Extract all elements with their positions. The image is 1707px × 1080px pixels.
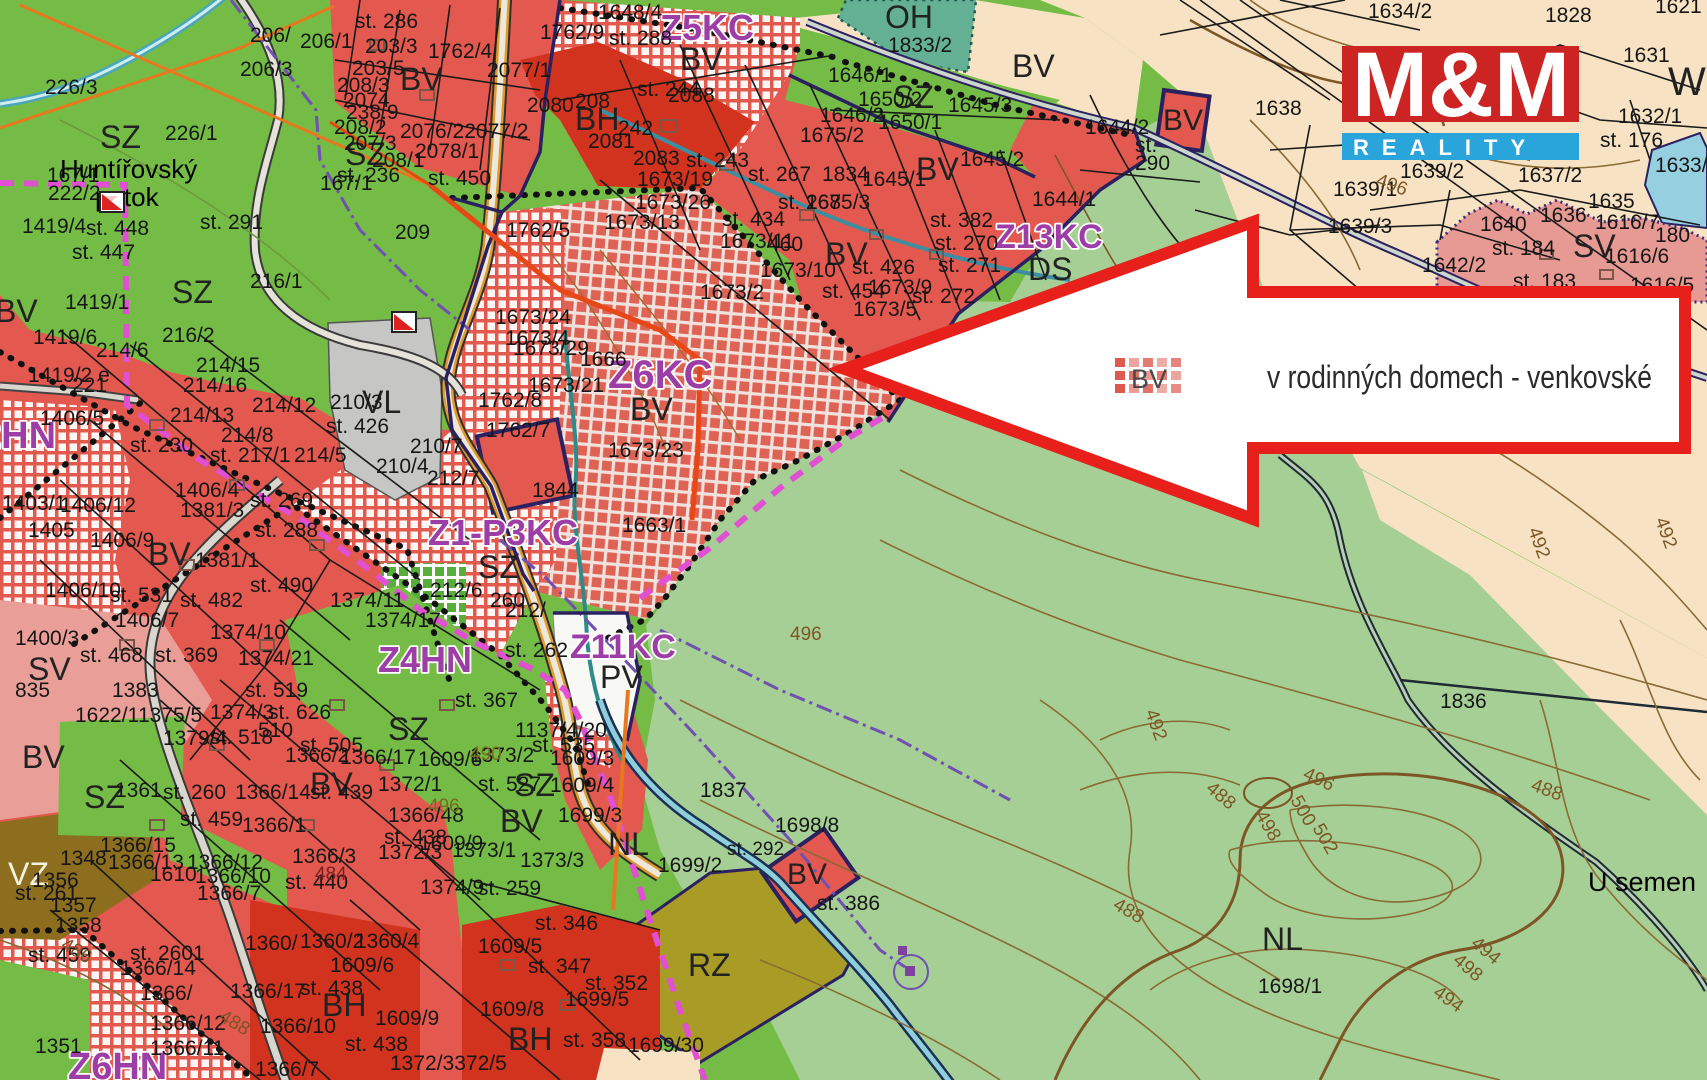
svg-text:2080: 2080 xyxy=(527,94,574,117)
svg-text:1374/21: 1374/21 xyxy=(238,647,314,670)
svg-text:1635: 1635 xyxy=(1588,190,1635,213)
svg-text:RZ: RZ xyxy=(688,947,731,983)
svg-text:st. 286: st. 286 xyxy=(355,10,418,33)
svg-text:BV: BV xyxy=(630,391,673,427)
svg-text:212/7: 212/7 xyxy=(427,467,480,490)
svg-text:1366/: 1366/ xyxy=(140,982,193,1005)
svg-text:1351: 1351 xyxy=(35,1035,82,1058)
svg-text:REALITY: REALITY xyxy=(1353,135,1538,160)
svg-text:214/16: 214/16 xyxy=(183,374,247,397)
svg-text:BV: BV xyxy=(500,803,543,839)
svg-text:st. 447: st. 447 xyxy=(72,241,135,264)
svg-text:1375/5: 1375/5 xyxy=(138,704,202,727)
svg-text:1675/2: 1675/2 xyxy=(800,124,864,147)
svg-text:1762/8: 1762/8 xyxy=(478,389,542,412)
svg-text:1610: 1610 xyxy=(150,863,197,886)
svg-text:496: 496 xyxy=(428,796,460,817)
svg-text:1358: 1358 xyxy=(55,914,102,937)
svg-text:1419/4: 1419/4 xyxy=(22,215,87,238)
svg-text:1419/1: 1419/1 xyxy=(65,291,129,314)
svg-text:st. 468: st. 468 xyxy=(80,644,143,667)
svg-text:1645/1: 1645/1 xyxy=(862,168,926,191)
svg-text:1699/30: 1699/30 xyxy=(628,1034,704,1057)
svg-text:1699/3: 1699/3 xyxy=(558,804,622,827)
svg-text:1356: 1356 xyxy=(32,869,79,892)
svg-text:Z1-P3KC: Z1-P3KC xyxy=(428,512,578,553)
svg-text:1609/6: 1609/6 xyxy=(330,954,394,977)
svg-text:st. 347: st. 347 xyxy=(528,955,591,978)
svg-text:460: 460 xyxy=(768,233,803,256)
svg-text:214/12: 214/12 xyxy=(252,394,316,417)
svg-text:1419/6: 1419/6 xyxy=(33,326,97,349)
svg-text:st. 272: st. 272 xyxy=(912,285,975,308)
svg-text:1633/3: 1633/3 xyxy=(1655,154,1707,177)
svg-text:SZ: SZ xyxy=(478,549,519,585)
svg-text:214/5: 214/5 xyxy=(294,444,347,467)
svg-text:st. 382: st. 382 xyxy=(930,209,993,232)
svg-text:st. 260: st. 260 xyxy=(163,781,226,804)
svg-text:221: 221 xyxy=(72,374,107,397)
svg-text:1366/14: 1366/14 xyxy=(120,957,196,980)
svg-text:1366/7: 1366/7 xyxy=(197,882,261,905)
svg-text:st. 434: st. 434 xyxy=(722,208,785,231)
svg-text:212/6: 212/6 xyxy=(430,579,483,602)
svg-text:st.: st. xyxy=(1135,134,1157,157)
svg-text:210/4: 210/4 xyxy=(376,455,429,478)
svg-text:1406/7: 1406/7 xyxy=(115,609,179,632)
svg-text:st. 269: st. 269 xyxy=(250,489,313,512)
svg-text:st. 482: st. 482 xyxy=(180,589,243,612)
svg-text:1366/10: 1366/10 xyxy=(260,1015,336,1038)
svg-text:1673/4: 1673/4 xyxy=(505,327,570,350)
svg-text:PV: PV xyxy=(600,659,643,695)
svg-text:2077/1: 2077/1 xyxy=(487,59,551,82)
svg-text:v rodinných domech - venkovské: v rodinných domech - venkovské xyxy=(1267,359,1652,395)
svg-text:835: 835 xyxy=(15,679,50,702)
svg-text:st. 519: st. 519 xyxy=(245,679,308,702)
svg-text:216/2: 216/2 xyxy=(162,324,215,347)
svg-text:BV: BV xyxy=(22,739,65,775)
svg-text:226/3: 226/3 xyxy=(45,76,98,99)
svg-text:st. 262: st. 262 xyxy=(505,639,568,662)
svg-text:st. 236: st. 236 xyxy=(337,164,400,187)
svg-text:1642/2: 1642/2 xyxy=(1422,254,1486,277)
svg-text:1609/9: 1609/9 xyxy=(375,1007,439,1030)
svg-text:st. 527: st. 527 xyxy=(478,773,541,796)
svg-text:st. 270: st. 270 xyxy=(935,232,998,255)
svg-text:st. 346: st. 346 xyxy=(535,912,598,935)
svg-text:1646/1: 1646/1 xyxy=(828,64,892,87)
svg-text:1366/7: 1366/7 xyxy=(255,1058,319,1080)
svg-text:st. 438: st. 438 xyxy=(300,977,363,1000)
svg-text:BV: BV xyxy=(1163,104,1203,137)
svg-text:2083: 2083 xyxy=(633,147,680,170)
svg-text:st. 230: st. 230 xyxy=(130,434,193,457)
svg-text:484: 484 xyxy=(315,864,347,885)
svg-text:1609/8: 1609/8 xyxy=(480,998,544,1021)
svg-text:1366/1: 1366/1 xyxy=(242,814,306,837)
svg-text:1366/17: 1366/17 xyxy=(230,980,306,1003)
svg-text:BV: BV xyxy=(1131,364,1167,394)
svg-text:1383: 1383 xyxy=(112,679,159,702)
svg-text:1372/3372/5: 1372/3372/5 xyxy=(390,1052,507,1075)
svg-text:2088: 2088 xyxy=(668,84,715,107)
svg-text:1673/23: 1673/23 xyxy=(608,439,684,462)
svg-text:1374/9: 1374/9 xyxy=(420,876,484,899)
svg-text:1372/1: 1372/1 xyxy=(378,773,442,796)
svg-text:206/3: 206/3 xyxy=(240,58,293,81)
svg-text:st. 518: st. 518 xyxy=(210,726,273,749)
svg-text:1366/17: 1366/17 xyxy=(340,746,416,769)
svg-text:208: 208 xyxy=(575,90,610,113)
svg-text:490: 490 xyxy=(470,744,502,765)
svg-text:1837: 1837 xyxy=(700,779,747,802)
svg-text:167/1: 167/1 xyxy=(47,164,100,187)
svg-text:206/1: 206/1 xyxy=(300,30,353,53)
svg-text:st. 288: st. 288 xyxy=(255,519,318,542)
svg-text:st. 426: st. 426 xyxy=(852,256,915,279)
svg-text:1673/24: 1673/24 xyxy=(495,306,571,329)
svg-text:1699/2: 1699/2 xyxy=(658,854,722,877)
svg-text:st. 367: st. 367 xyxy=(455,689,518,712)
svg-text:206/: 206/ xyxy=(250,24,291,47)
svg-text:BV: BV xyxy=(680,41,723,77)
svg-text:1631: 1631 xyxy=(1623,44,1670,67)
svg-text:1645/3: 1645/3 xyxy=(948,94,1012,117)
svg-text:203/3: 203/3 xyxy=(365,35,418,58)
svg-text:1366/11: 1366/11 xyxy=(150,1037,224,1060)
svg-text:OH: OH xyxy=(885,0,933,35)
svg-text:SZ: SZ xyxy=(172,274,213,310)
svg-text:1348: 1348 xyxy=(60,847,107,870)
svg-text:1632/1: 1632/1 xyxy=(1618,105,1682,128)
svg-text:st. 439: st. 439 xyxy=(310,781,373,804)
svg-text:1621: 1621 xyxy=(1655,0,1702,18)
svg-text:BV: BV xyxy=(1012,48,1055,84)
svg-text:NL: NL xyxy=(1262,921,1303,957)
svg-text:1637/2: 1637/2 xyxy=(1518,164,1582,187)
svg-text:1381/3: 1381/3 xyxy=(180,499,244,522)
svg-text:1361: 1361 xyxy=(115,779,162,802)
svg-text:1634/2: 1634/2 xyxy=(1368,0,1432,23)
svg-text:BV: BV xyxy=(0,293,38,329)
svg-text:1372/3: 1372/3 xyxy=(378,841,442,864)
svg-text:1406/9: 1406/9 xyxy=(90,529,154,552)
svg-text:1648/4: 1648/4 xyxy=(598,1,663,24)
svg-text:1762/5: 1762/5 xyxy=(506,219,570,242)
svg-text:BV: BV xyxy=(400,61,443,97)
svg-text:1403/1: 1403/1 xyxy=(2,492,66,515)
svg-text:216/1: 216/1 xyxy=(250,270,303,293)
svg-text:1406/5: 1406/5 xyxy=(40,407,104,430)
svg-text:1650/1: 1650/1 xyxy=(878,111,942,134)
svg-text:st. 426: st. 426 xyxy=(326,415,389,438)
svg-text:1673/2: 1673/2 xyxy=(700,281,764,304)
svg-text:180: 180 xyxy=(1655,224,1690,247)
svg-text:st. 292: st. 292 xyxy=(727,839,784,860)
svg-text:U semen: U semen xyxy=(1588,867,1696,897)
svg-text:Z4HN: Z4HN xyxy=(378,639,472,680)
svg-text:NL: NL xyxy=(608,826,649,862)
svg-text:1622/1: 1622/1 xyxy=(75,704,139,727)
svg-text:496: 496 xyxy=(790,624,822,645)
svg-text:1698/1: 1698/1 xyxy=(1258,975,1322,998)
svg-text:210/3: 210/3 xyxy=(330,391,383,414)
svg-text:1360/4: 1360/4 xyxy=(355,930,420,953)
svg-text:1640: 1640 xyxy=(1480,213,1527,236)
svg-text:st. 448: st. 448 xyxy=(86,217,149,240)
svg-text:BV: BV xyxy=(148,536,191,572)
svg-text:1366/2: 1366/2 xyxy=(285,744,349,767)
svg-text:1366/14: 1366/14 xyxy=(235,781,311,804)
svg-text:1762/9: 1762/9 xyxy=(540,21,604,44)
svg-text:1609/3: 1609/3 xyxy=(550,747,614,770)
svg-text:st. 217/1: st. 217/1 xyxy=(210,444,291,467)
svg-text:1400/3: 1400/3 xyxy=(15,627,79,650)
svg-text:st. 291: st. 291 xyxy=(200,211,263,234)
svg-text:1699/5: 1699/5 xyxy=(565,988,629,1011)
svg-text:1366/12: 1366/12 xyxy=(150,1012,226,1035)
svg-text:st. 176: st. 176 xyxy=(1600,129,1663,152)
svg-text:SZ: SZ xyxy=(100,119,141,155)
svg-text:1698/8: 1698/8 xyxy=(775,814,839,837)
svg-text:st. 259: st. 259 xyxy=(478,877,541,900)
svg-text:1616/6: 1616/6 xyxy=(1605,245,1669,268)
svg-text:st. 450: st. 450 xyxy=(428,167,491,190)
svg-text:1609/4: 1609/4 xyxy=(550,774,615,797)
svg-text:M&M: M&M xyxy=(1352,34,1570,136)
svg-text:BH: BH xyxy=(508,1021,552,1057)
svg-text:2078/1: 2078/1 xyxy=(415,140,479,163)
svg-text:1663/1: 1663/1 xyxy=(622,514,686,537)
svg-text:st. 358: st. 358 xyxy=(563,1029,626,1052)
svg-text:1638: 1638 xyxy=(1255,97,1302,120)
svg-text:214/13: 214/13 xyxy=(170,404,234,427)
svg-text:st. 288: st. 288 xyxy=(609,27,672,50)
svg-text:1616/7: 1616/7 xyxy=(1595,211,1659,234)
svg-text:SZ: SZ xyxy=(388,711,429,747)
svg-text:DS: DS xyxy=(1028,251,1072,287)
svg-text:1639/3: 1639/3 xyxy=(1328,215,1392,238)
svg-text:1644/1: 1644/1 xyxy=(1032,188,1096,211)
svg-text:st. 386: st. 386 xyxy=(817,892,880,915)
svg-text:st. 531: st. 531 xyxy=(110,584,173,607)
svg-text:st. 184: st. 184 xyxy=(1492,237,1555,260)
svg-text:212/: 212/ xyxy=(505,599,546,622)
svg-text:1645/2: 1645/2 xyxy=(960,148,1024,171)
svg-text:1360/: 1360/ xyxy=(245,932,298,955)
svg-text:1636: 1636 xyxy=(1540,204,1587,227)
svg-text:st. 459: st. 459 xyxy=(180,808,243,831)
svg-text:1762/7: 1762/7 xyxy=(486,419,550,442)
svg-text:1405: 1405 xyxy=(28,519,75,542)
svg-text:1836: 1836 xyxy=(1440,690,1487,713)
svg-text:1844: 1844 xyxy=(532,479,579,502)
svg-text:1828: 1828 xyxy=(1545,4,1592,27)
svg-text:st. 271: st. 271 xyxy=(938,254,1001,277)
svg-text:226/1: 226/1 xyxy=(165,122,218,145)
svg-text:1673/10: 1673/10 xyxy=(760,259,836,282)
svg-text:1373/3: 1373/3 xyxy=(520,849,584,872)
svg-text:st. 267: st. 267 xyxy=(748,163,811,186)
svg-text:st. 490: st. 490 xyxy=(250,574,313,597)
svg-text:W: W xyxy=(1668,60,1706,104)
svg-text:1673/5: 1673/5 xyxy=(853,298,917,321)
svg-text:1374/17: 1374/17 xyxy=(365,609,441,632)
svg-text:209: 209 xyxy=(395,221,430,244)
svg-text:1675/3: 1675/3 xyxy=(806,191,870,214)
svg-text:1406/12: 1406/12 xyxy=(60,494,136,517)
svg-text:st. 369: st. 369 xyxy=(155,644,218,667)
svg-text:1833/2: 1833/2 xyxy=(888,34,952,57)
svg-text:BV: BV xyxy=(787,858,827,891)
svg-text:1762/4: 1762/4 xyxy=(428,40,493,63)
svg-text:1374/10: 1374/10 xyxy=(210,621,286,644)
svg-text:1381/1: 1381/1 xyxy=(195,549,259,572)
svg-text:1673/19: 1673/19 xyxy=(637,168,713,191)
svg-text:2081: 2081 xyxy=(588,130,635,153)
svg-text:214/6: 214/6 xyxy=(96,339,149,362)
svg-text:1673/13: 1673/13 xyxy=(604,211,680,234)
